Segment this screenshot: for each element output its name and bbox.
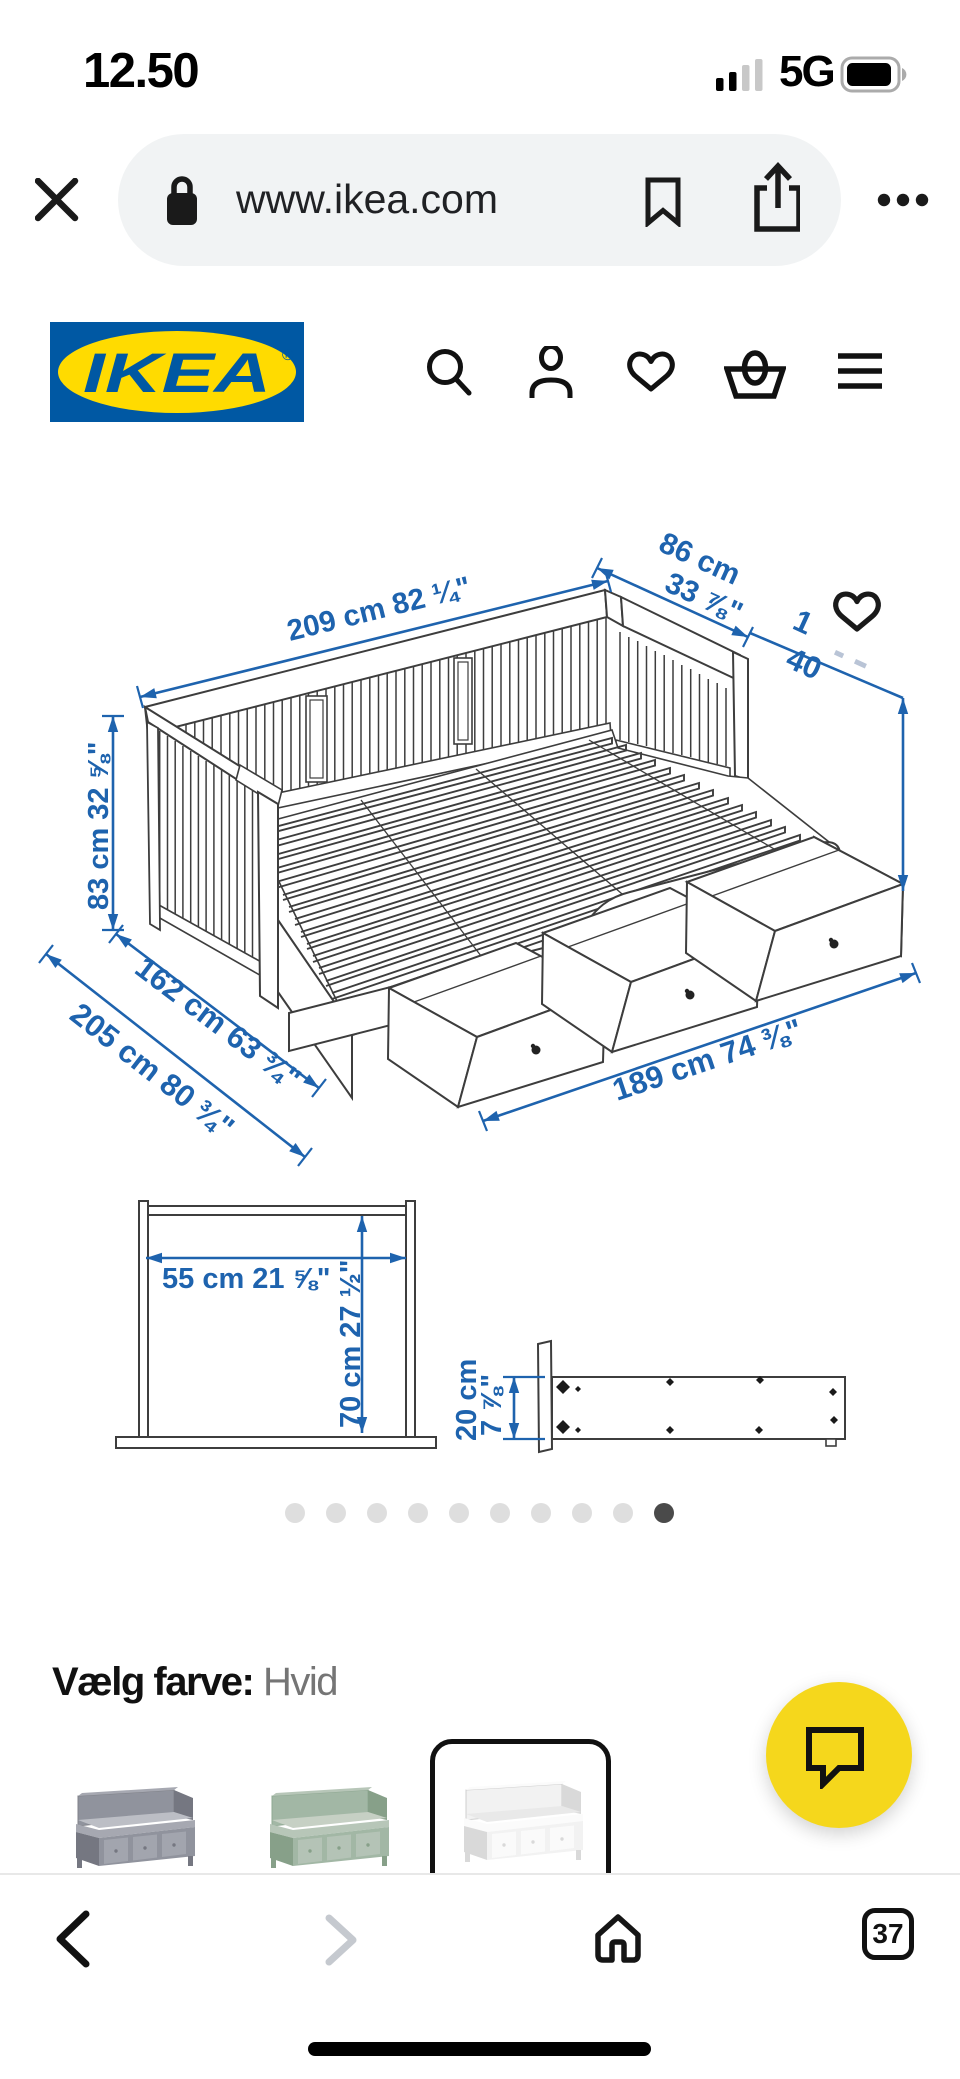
svg-text:70 cm 27 ½": 70 cm 27 ½" [335,1259,367,1428]
svg-text:1: 1 [788,603,818,642]
svg-text:7 ⅞": 7 ⅞" [476,1374,508,1436]
svg-text:83 cm 32 ⅝": 83 cm 32 ⅝" [83,741,115,910]
svg-text:IKEA: IKEA [83,341,271,404]
svg-text:55 cm 21 ⅝": 55 cm 21 ⅝" [162,1263,331,1295]
svg-text:®: ® [282,347,294,364]
